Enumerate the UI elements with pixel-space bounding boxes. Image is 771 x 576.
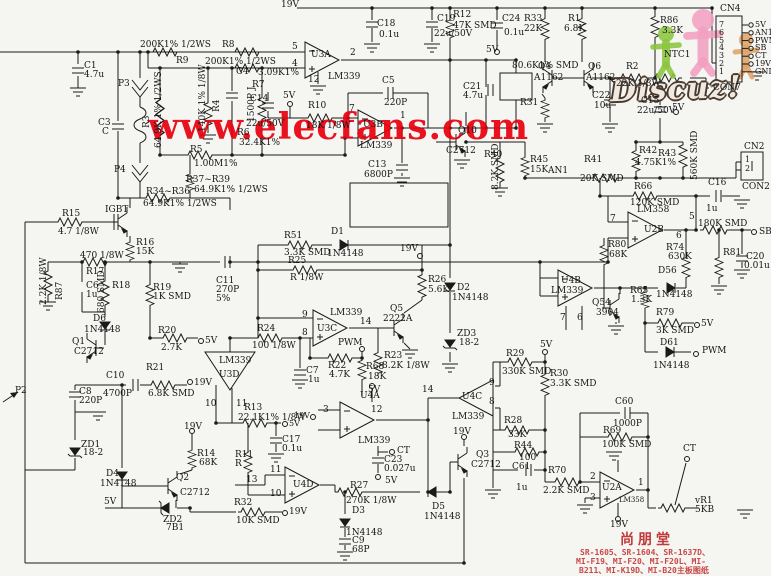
component-label: 3.3K SMD bbox=[550, 380, 597, 389]
component-label: R15 bbox=[62, 210, 80, 219]
component-label: 22u/50V bbox=[637, 107, 675, 116]
component-label: R44 bbox=[514, 442, 532, 451]
component-label: LM339 bbox=[219, 357, 251, 366]
connector-cn4-title: CN4 bbox=[720, 5, 741, 14]
component-label: C13 bbox=[368, 161, 386, 170]
component-label: R9 bbox=[176, 57, 189, 66]
component-label: C61 bbox=[512, 463, 530, 472]
component-label: SB bbox=[759, 228, 771, 237]
component-label: R51 bbox=[284, 232, 302, 241]
component-label: P2 bbox=[15, 387, 27, 396]
component-label: CT bbox=[397, 447, 410, 456]
component-label: LM358 bbox=[619, 497, 644, 504]
component-label: LM339 bbox=[452, 413, 484, 422]
component-label: 1N4148 bbox=[84, 326, 121, 335]
component-label: 0.1u bbox=[379, 31, 399, 40]
component-label: C15 bbox=[641, 97, 659, 106]
component-label: R81 bbox=[723, 249, 741, 258]
component-label: 68P bbox=[352, 546, 370, 555]
component-label: 6 bbox=[577, 314, 583, 323]
component-label: 14 bbox=[422, 386, 433, 395]
component-label: 15K bbox=[530, 166, 548, 175]
component-label: PWM bbox=[702, 347, 727, 356]
component-label: R33 bbox=[524, 15, 542, 24]
component-label: R4 bbox=[213, 99, 222, 112]
component-label: 2 bbox=[350, 49, 356, 58]
component-label: AN1 bbox=[548, 167, 568, 176]
component-label: Q54 bbox=[592, 299, 611, 308]
component-label: 5V bbox=[672, 104, 684, 113]
component-label: 1N4148 bbox=[656, 291, 693, 300]
component-label: C2712 bbox=[74, 348, 104, 357]
component-label: 5V bbox=[104, 498, 116, 507]
component-label: 200K1% 1/2WS bbox=[205, 58, 276, 67]
component-label: 5 bbox=[689, 213, 695, 222]
component-label: 47K SMD bbox=[453, 22, 497, 31]
component-label: 5KB bbox=[695, 506, 714, 515]
component-label: 7B1 bbox=[166, 524, 184, 533]
component-label: 12 bbox=[371, 406, 382, 415]
component-label: 19V bbox=[184, 423, 202, 432]
component-label: R41 bbox=[584, 156, 602, 165]
component-label: 32.4K1% bbox=[239, 139, 280, 148]
component-label: C2712 bbox=[471, 461, 501, 470]
component-label: LM358 bbox=[637, 206, 669, 215]
component-label: C60 bbox=[615, 398, 633, 407]
component-label: 18-2 bbox=[83, 449, 103, 458]
component-label: 5V bbox=[540, 341, 552, 350]
component-label: 2222A bbox=[383, 315, 412, 324]
component-label: R42 bbox=[639, 147, 657, 156]
component-label: 3904 bbox=[596, 309, 619, 318]
component-label: 5% bbox=[216, 295, 230, 304]
component-label: 220P bbox=[384, 99, 407, 108]
component-label: 10 bbox=[205, 400, 216, 409]
component-label: R8 bbox=[222, 41, 235, 50]
component-label: D1 bbox=[331, 228, 344, 237]
component-label: R87 bbox=[56, 282, 65, 300]
component-label: 6 bbox=[676, 232, 682, 241]
component-label: 22u/50V bbox=[246, 120, 284, 129]
component-label: R13 bbox=[244, 404, 262, 413]
component-label: D61 bbox=[660, 339, 679, 348]
component-label: 1N4148 bbox=[327, 250, 364, 259]
component-label: 2.2K SMD bbox=[543, 487, 590, 496]
component-label: 1u bbox=[516, 484, 528, 493]
component-label: 5V bbox=[701, 320, 713, 329]
component-label: C24 bbox=[502, 15, 520, 24]
component-label: 4.7u bbox=[463, 92, 483, 101]
component-label: U2A bbox=[602, 484, 622, 493]
component-label: R43 bbox=[658, 150, 676, 159]
component-label: D4 bbox=[106, 470, 119, 479]
component-label: IGBT bbox=[105, 206, 128, 215]
component-label: C4 bbox=[236, 68, 249, 77]
component-label: 8 bbox=[302, 329, 308, 338]
component-label: R1 bbox=[568, 15, 581, 24]
component-label: U3C bbox=[317, 325, 337, 334]
component-label: 10K SMD bbox=[236, 517, 280, 526]
component-label: 1u bbox=[706, 205, 718, 214]
component-label: 33K bbox=[508, 431, 526, 440]
component-label: 64.9K1% 1/2WS bbox=[194, 186, 268, 195]
component-label: 220P bbox=[79, 397, 102, 406]
component-label: A1162 bbox=[586, 74, 615, 83]
component-label: R37~R39 bbox=[186, 176, 230, 185]
component-label: 6.8K SMD bbox=[148, 390, 195, 399]
footer-models-line: B211、MI-K19D、MI-B20主板图纸 bbox=[579, 565, 709, 576]
component-label: 560K SMD bbox=[691, 131, 700, 180]
component-label: R86 bbox=[660, 17, 678, 26]
component-label: C14 bbox=[250, 95, 268, 104]
component-label: 1N4148 bbox=[424, 513, 461, 522]
component-label: 1u bbox=[308, 376, 320, 385]
component-label: 7 bbox=[610, 215, 616, 224]
component-label: R2 bbox=[626, 63, 639, 72]
component-label: R28 bbox=[504, 417, 522, 426]
component-label: 0.01u bbox=[744, 262, 770, 271]
component-label: C18 bbox=[377, 20, 395, 29]
component-label: 8.2K SMD bbox=[492, 144, 501, 191]
component-label: 1 bbox=[400, 112, 406, 121]
component-label: 630K bbox=[668, 253, 692, 262]
component-label: R5 bbox=[190, 146, 203, 155]
component-label: 0.1u bbox=[504, 29, 524, 38]
component-label: 2.7K bbox=[161, 344, 182, 353]
component-label: 270K 1/8W bbox=[346, 497, 397, 506]
component-label: D6 bbox=[93, 315, 106, 324]
component-label: R18 bbox=[112, 282, 130, 291]
component-label: 5.6K bbox=[428, 286, 449, 295]
component-label: R29 bbox=[506, 350, 524, 359]
component-label: D5 bbox=[432, 503, 445, 512]
component-label: R bbox=[235, 460, 242, 469]
component-label: LM339 bbox=[330, 309, 362, 318]
component-label: 4.75K1% bbox=[635, 159, 676, 168]
component-label: NTC1 bbox=[664, 51, 691, 60]
component-label: 1.3K bbox=[631, 296, 652, 305]
component-label: R20 bbox=[158, 327, 176, 336]
component-label: R30 bbox=[550, 370, 568, 379]
component-label: 9 bbox=[489, 379, 495, 388]
component-label: C2712 bbox=[180, 489, 210, 498]
component-label: 3.09K1% bbox=[258, 69, 299, 78]
component-label: 1N4148 bbox=[653, 362, 690, 371]
component-label: Q5 bbox=[390, 305, 403, 314]
component-label: R45 bbox=[530, 156, 548, 165]
component-label: 1K SMD bbox=[153, 293, 191, 302]
component-label: LM339 bbox=[360, 142, 392, 151]
component-label: 19V bbox=[400, 245, 418, 254]
component-label: 0.027u bbox=[384, 465, 416, 474]
component-label: Q10 bbox=[458, 127, 477, 136]
component-label: U4A bbox=[360, 392, 380, 401]
component-label: 12 bbox=[308, 76, 319, 85]
component-label: 10 bbox=[270, 490, 281, 499]
component-label: 0.1u bbox=[282, 445, 302, 454]
component-label: 22K 1/8W bbox=[616, 80, 661, 89]
component-label: 68K bbox=[609, 251, 627, 260]
component-label: CT bbox=[683, 445, 696, 454]
footer-brand: 尚朋堂 bbox=[620, 529, 674, 549]
component-label: 1N4148 bbox=[100, 480, 137, 489]
component-label: U3D bbox=[219, 371, 240, 380]
schematic-page: www.elecfans.com Discuz! 尚朋堂 SR-1605、SR-… bbox=[0, 0, 771, 576]
component-label: 140K 1% 1/8W bbox=[199, 64, 208, 132]
cn4-pin-number: 1 bbox=[719, 68, 724, 76]
component-label: U4C bbox=[462, 393, 482, 402]
component-label: R32 bbox=[234, 499, 252, 508]
component-label: 3K SMD bbox=[656, 327, 694, 336]
component-label: 4.7 1/8W bbox=[58, 228, 99, 237]
component-label: 19V bbox=[610, 521, 628, 530]
component-label: 7 bbox=[349, 105, 355, 114]
component-label: 68K bbox=[199, 459, 217, 468]
component-label: R80 bbox=[608, 241, 626, 250]
component-label: 1N4148 bbox=[452, 294, 489, 303]
component-label: 19V bbox=[194, 379, 212, 388]
component-label: 1500P J bbox=[248, 87, 257, 122]
component-label: LM339 bbox=[358, 437, 390, 446]
component-label: 8.2K 1/8W bbox=[382, 362, 430, 371]
component-label: U3B bbox=[363, 121, 383, 130]
component-label: A1162 bbox=[534, 74, 563, 83]
component-label: Q2 bbox=[176, 474, 189, 483]
component-label: R27 bbox=[350, 482, 368, 491]
component-label: R26 bbox=[428, 276, 446, 285]
component-label: 4 bbox=[292, 60, 298, 69]
component-label: 4.7u bbox=[84, 71, 104, 80]
component-label: 5V bbox=[385, 477, 397, 486]
component-label: D3 bbox=[352, 507, 365, 516]
cn4-pin-label: GND bbox=[755, 68, 771, 76]
component-label: 180K SMD bbox=[698, 220, 747, 229]
component-label: 18K bbox=[368, 373, 386, 382]
component-label: PWM bbox=[338, 339, 363, 348]
component-label: Q6 bbox=[588, 63, 601, 72]
component-label: 3.3K bbox=[662, 27, 683, 36]
component-label: 2.2K 1/8W bbox=[40, 257, 49, 305]
component-label: 1u bbox=[86, 291, 98, 300]
component-label: 19V bbox=[289, 508, 307, 517]
component-label: 680 SMD bbox=[98, 270, 107, 313]
component-label: C16 bbox=[708, 179, 726, 188]
component-label: 6800P bbox=[364, 171, 393, 180]
component-label: Q1 bbox=[72, 338, 85, 347]
component-label: R10 bbox=[308, 102, 326, 111]
component-label: 330K SMD bbox=[502, 368, 551, 377]
component-label: 14 bbox=[360, 318, 371, 327]
component-label: 5 bbox=[292, 43, 298, 52]
component-label: U3A bbox=[311, 51, 331, 60]
component-label: P4 bbox=[114, 166, 126, 175]
component-label: 22u/50V bbox=[434, 30, 472, 39]
component-label: Q3 bbox=[476, 451, 489, 460]
component-label: 18-2 bbox=[459, 339, 479, 348]
component-label: P3 bbox=[118, 80, 130, 89]
component-label: R69 bbox=[603, 427, 621, 436]
component-label: 8 bbox=[489, 398, 495, 407]
component-label: 4700P bbox=[103, 390, 132, 399]
component-label: U2B bbox=[644, 226, 664, 235]
component-label: 470 1/8W bbox=[80, 252, 124, 261]
component-label: 11 bbox=[270, 466, 281, 475]
component-label: 7 bbox=[560, 314, 566, 323]
component-label: 3 bbox=[590, 494, 596, 503]
component-label: 19V bbox=[294, 412, 310, 420]
component-label: 3 bbox=[323, 406, 329, 415]
component-label: R34~R36 bbox=[146, 188, 190, 197]
component-label: 64.9K 1% 1/2WS bbox=[155, 71, 164, 148]
component-label: 1.00M1% bbox=[194, 160, 238, 169]
component-label: R70 bbox=[548, 467, 566, 476]
component-label: U4D bbox=[293, 481, 314, 490]
component-label: 9 bbox=[302, 311, 308, 320]
component-label: 200K1% 1/2WS bbox=[140, 41, 211, 50]
component-label: R12 bbox=[453, 11, 471, 20]
component-label: 5V bbox=[283, 92, 295, 101]
component-label: 100 1/8W bbox=[252, 342, 296, 351]
component-label: 20K SMD bbox=[580, 175, 624, 184]
component-label: 64.9K1% 1/2WS bbox=[143, 200, 217, 209]
component-label: C5 bbox=[382, 77, 395, 86]
component-label: 5V bbox=[205, 337, 217, 346]
connector-cn2-title: CN2 bbox=[744, 143, 765, 152]
component-label: R31 bbox=[520, 99, 538, 108]
component-label: C22 bbox=[592, 92, 610, 101]
component-label: R25 bbox=[288, 257, 306, 266]
component-label: 2 bbox=[590, 473, 596, 482]
component-label: R66 bbox=[634, 183, 652, 192]
component-label: C2712 bbox=[446, 147, 476, 156]
component-label: D56 bbox=[658, 267, 677, 276]
component-label: 6.8K bbox=[564, 25, 585, 34]
component-label: 4.7K bbox=[329, 371, 350, 380]
component-label: 22K bbox=[524, 25, 542, 34]
component-label: Q4 bbox=[538, 63, 551, 72]
component-label: R24 bbox=[257, 325, 275, 334]
component-label: 13 bbox=[246, 476, 257, 485]
component-label: R 1/8W bbox=[290, 274, 323, 283]
component-label: LM339 bbox=[328, 73, 360, 82]
component-label: U4B bbox=[561, 277, 581, 286]
component-label: 5V bbox=[289, 420, 300, 428]
component-label: C bbox=[102, 128, 109, 137]
component-label: R79 bbox=[656, 309, 674, 318]
component-label: R7 bbox=[252, 81, 265, 90]
component-label: 18K 1/8W bbox=[306, 122, 351, 131]
component-label: 5V bbox=[486, 46, 498, 55]
component-label: R6 bbox=[237, 129, 250, 138]
component-label: 19V bbox=[281, 1, 299, 10]
component-label: R3 bbox=[143, 115, 152, 128]
component-label: LM339 bbox=[551, 287, 583, 296]
component-label: D2 bbox=[457, 284, 470, 293]
component-label: R21 bbox=[146, 364, 164, 373]
connector-cn2-footer: CON2 bbox=[742, 183, 770, 192]
component-label: R23 bbox=[384, 352, 402, 361]
component-label: 15K bbox=[136, 248, 154, 257]
cn2-pin-number: 2 bbox=[745, 165, 750, 173]
component-label: 19V bbox=[453, 428, 471, 437]
component-label: C10 bbox=[106, 372, 124, 381]
connector-cn4-footer: CON7 bbox=[713, 84, 741, 93]
component-label: 1 bbox=[638, 479, 644, 488]
component-label: 10u bbox=[594, 102, 611, 111]
cn2-pin-number: 1 bbox=[745, 156, 750, 164]
component-label: 100K SMD bbox=[602, 441, 651, 450]
